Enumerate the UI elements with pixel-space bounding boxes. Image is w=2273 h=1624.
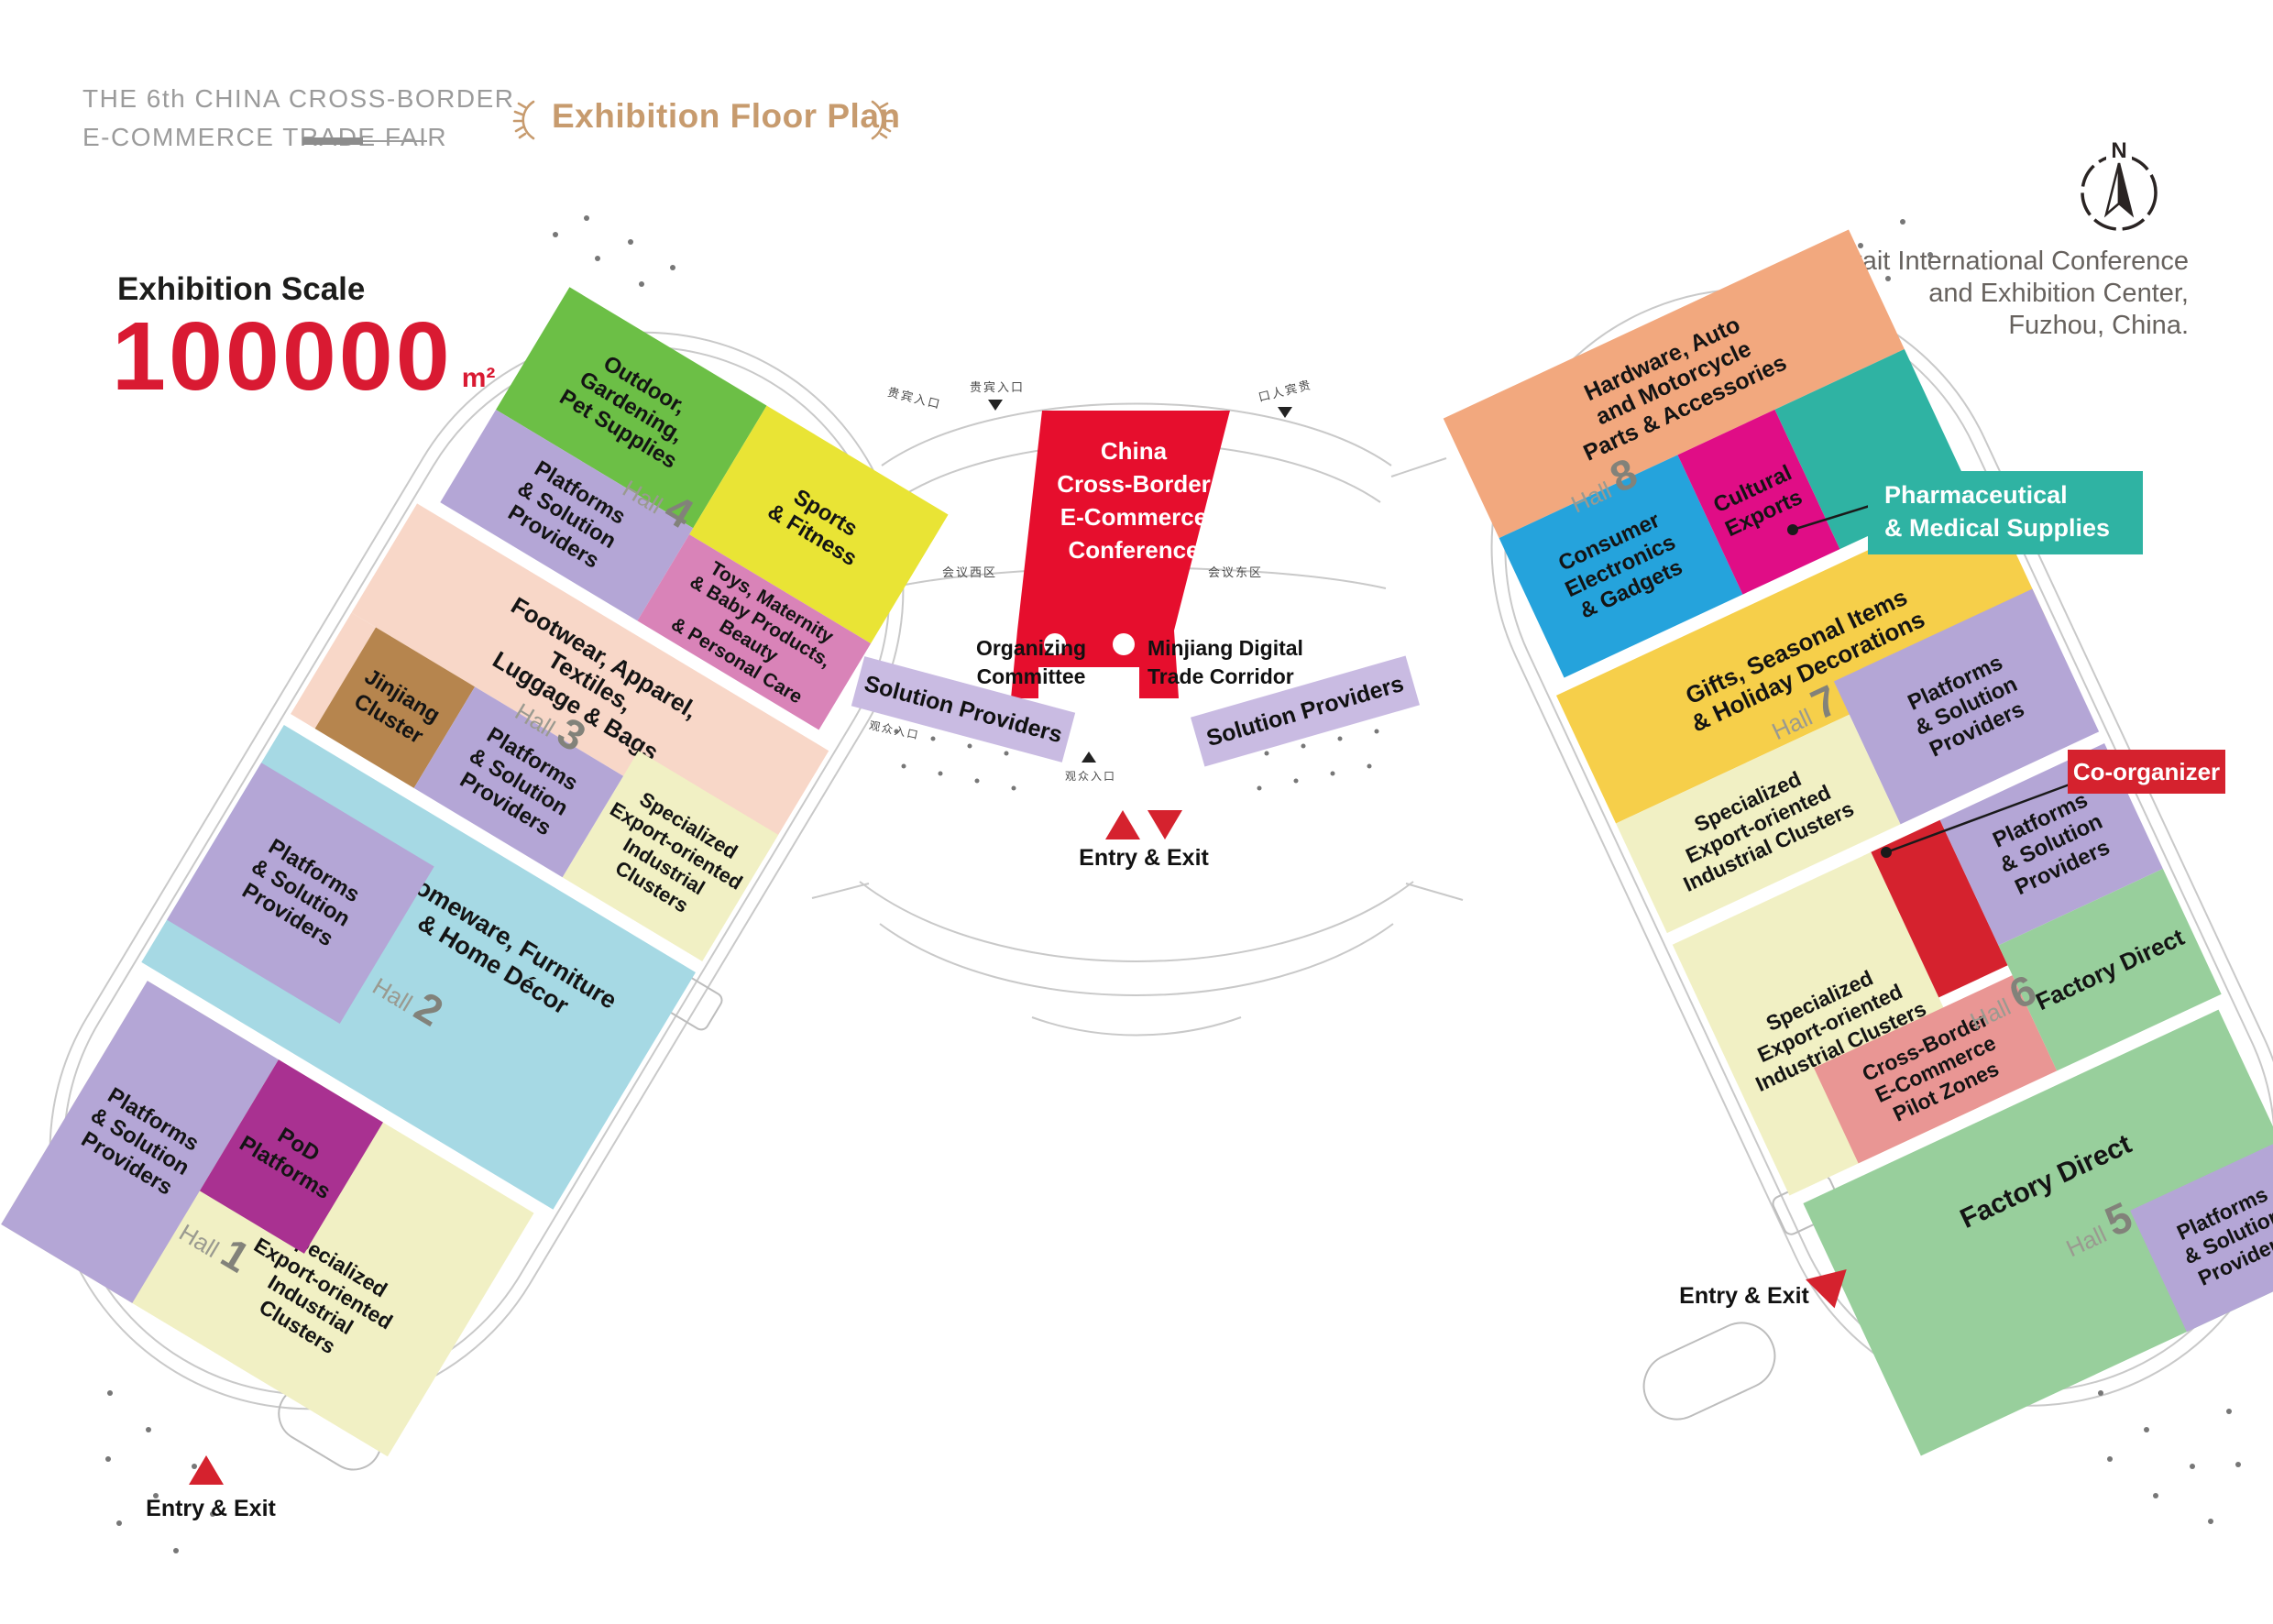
conference-label: China Cross-Border E-Commerce Conference bbox=[1039, 434, 1228, 566]
conference-line2: Cross-Border bbox=[1039, 467, 1228, 500]
meeting-west-label: 会议西区 bbox=[942, 563, 997, 580]
pharmaceutical-callout: Pharmaceutical & Medical Supplies bbox=[1868, 471, 2143, 554]
vip-entrance-right-arrow-icon bbox=[1278, 407, 1292, 418]
conference-line4: Conference bbox=[1039, 533, 1228, 566]
entry-exit-bottom-left-label: Entry & Exit bbox=[137, 1496, 284, 1522]
organizing-committee-label: Organizing Committee bbox=[944, 634, 1118, 691]
coorganizer-callout: Co-organizer bbox=[2068, 750, 2225, 794]
conference-line1: China bbox=[1039, 434, 1228, 467]
conference-line3: E-Commerce bbox=[1039, 500, 1228, 533]
vip-entrance-center-label: 贵宾入口 bbox=[970, 378, 1025, 395]
entry-exit-right-label: Entry & Exit bbox=[1675, 1283, 1813, 1310]
exit-triangle-down-icon bbox=[1147, 810, 1182, 839]
entry-exit-center-label: Entry & Exit bbox=[1061, 845, 1226, 872]
coorganizer-leader-line bbox=[1886, 785, 2070, 852]
audience-entrance-arrow-icon bbox=[1082, 752, 1096, 763]
vip-entrance-center-arrow-icon bbox=[988, 400, 1003, 411]
entry-triangle-bottom-left-icon bbox=[189, 1455, 224, 1485]
pharma-leader-line bbox=[1793, 506, 1870, 530]
entry-triangle-up-icon bbox=[1105, 810, 1140, 839]
meeting-east-label: 会议东区 bbox=[1208, 563, 1263, 580]
floor-plan-canvas: THE 6th CHINA CROSS-BORDER E-COMMERCE TR… bbox=[0, 0, 2273, 1624]
pharma-leader-dot bbox=[1787, 524, 1798, 535]
audience-entrance-center-label: 观众入口 bbox=[1065, 768, 1116, 784]
coorganizer-leader-dot bbox=[1881, 847, 1892, 858]
minjiang-corridor-label: Minjiang Digital Trade Corridor bbox=[1147, 634, 1367, 691]
